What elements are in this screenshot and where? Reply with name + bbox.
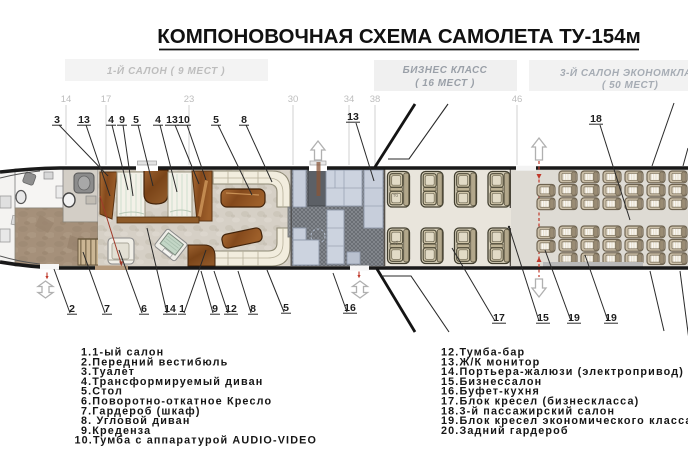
svg-text:13: 13 <box>78 114 90 126</box>
svg-text:8: 8 <box>250 303 256 315</box>
svg-text:3: 3 <box>54 114 60 126</box>
svg-text:30: 30 <box>288 94 299 105</box>
svg-text:2: 2 <box>69 303 75 315</box>
svg-text:9: 9 <box>119 114 125 126</box>
svg-text:тб: тб <box>393 193 398 199</box>
svg-text:7: 7 <box>104 303 110 315</box>
svg-text:БИЗНЕС КЛАСС: БИЗНЕС КЛАСС <box>403 65 488 76</box>
svg-text:9: 9 <box>212 303 218 315</box>
svg-text:тб: тб <box>393 241 398 247</box>
svg-text:17: 17 <box>101 94 112 105</box>
svg-text:4: 4 <box>108 114 114 126</box>
svg-text:14: 14 <box>61 94 72 105</box>
svg-text:13: 13 <box>166 114 178 126</box>
svg-text:12: 12 <box>225 303 237 315</box>
svg-text:6: 6 <box>141 303 147 315</box>
svg-text:5: 5 <box>133 114 139 126</box>
svg-text:16: 16 <box>344 302 356 314</box>
svg-text:1: 1 <box>179 303 185 315</box>
svg-text:23: 23 <box>184 94 195 105</box>
svg-text:( 50 МЕСТ): ( 50 МЕСТ) <box>602 80 658 91</box>
svg-text:34: 34 <box>344 94 355 105</box>
svg-text:38: 38 <box>370 94 381 105</box>
svg-text:17: 17 <box>493 312 505 324</box>
svg-text:14: 14 <box>164 303 176 315</box>
svg-text:5: 5 <box>213 114 219 126</box>
svg-text:15: 15 <box>537 312 549 324</box>
svg-text:8: 8 <box>241 114 247 126</box>
svg-text:19: 19 <box>568 312 580 324</box>
svg-text:19: 19 <box>605 312 617 324</box>
svg-text:18: 18 <box>590 113 602 125</box>
svg-text:10: 10 <box>178 114 190 126</box>
svg-text:46: 46 <box>512 94 523 105</box>
svg-text:1-Й САЛОН ( 9 МЕСТ ): 1-Й САЛОН ( 9 МЕСТ ) <box>107 64 225 77</box>
svg-text:13: 13 <box>347 111 359 123</box>
svg-text:5: 5 <box>283 302 289 314</box>
svg-text:КОМПОНОВОЧНАЯ СХЕМА САМОЛЕТА Т: КОМПОНОВОЧНАЯ СХЕМА САМОЛЕТА ТУ-154м <box>157 25 640 48</box>
svg-text:( 16 МЕСТ ): ( 16 МЕСТ ) <box>415 78 475 89</box>
svg-text:10.Тумба с аппаратурой AUDIO-V: 10.Тумба с аппаратурой AUDIO-VIDEO <box>75 435 318 447</box>
svg-text:20.Задний гардероб: 20.Задний гардероб <box>441 425 569 437</box>
svg-text:4: 4 <box>155 114 161 126</box>
svg-text:3-Й САЛОН ЭКОНОМКЛАСС: 3-Й САЛОН ЭКОНОМКЛАСС <box>560 66 688 79</box>
